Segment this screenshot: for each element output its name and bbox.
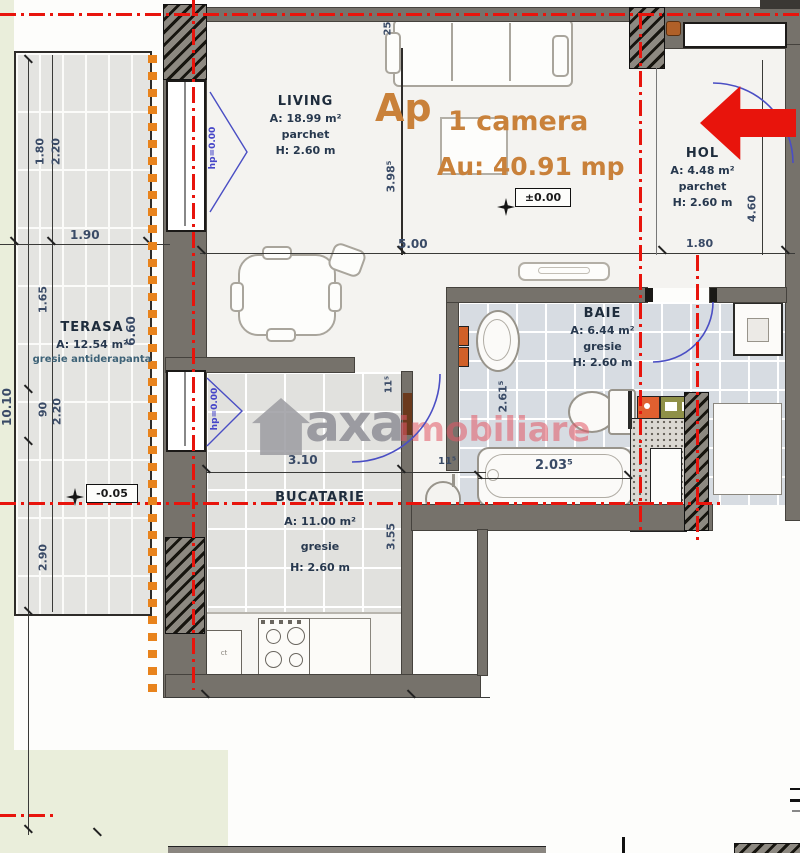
sofa bbox=[393, 19, 573, 87]
page-bottom-green-block bbox=[0, 750, 228, 853]
kitchen-window bbox=[166, 370, 206, 452]
dining-chair-bottom bbox=[266, 328, 296, 342]
living-area: A: 18.99 m² bbox=[248, 112, 363, 125]
bath-door-jamb-right bbox=[710, 288, 717, 302]
baie-height: H: 2.60 m bbox=[555, 356, 650, 369]
dim-bath-261: 2.61⁵ bbox=[497, 367, 510, 427]
kitchen-counter bbox=[309, 618, 371, 676]
level-zero-box: ±0.00 bbox=[515, 188, 571, 207]
bath-sink-inner bbox=[483, 319, 511, 361]
stove-knob-strip bbox=[261, 620, 305, 624]
dim-living-398: 3.98⁵ bbox=[385, 147, 398, 207]
right-edge-dash-3 bbox=[792, 810, 800, 812]
axis-stub-bottom-left bbox=[0, 814, 56, 817]
hol-area: A: 4.48 m² bbox=[655, 164, 750, 177]
bucatarie-name: BUCATARIE bbox=[250, 490, 390, 505]
bathtub bbox=[477, 447, 633, 507]
bucatarie-label: BUCATARIE A: 11.00 m² gresie H: 2.60 m bbox=[250, 490, 390, 574]
living-label: LIVING A: 18.99 m² parchet H: 2.60 m bbox=[248, 94, 363, 157]
dim-terrace-width: 1.90 bbox=[70, 228, 100, 242]
bucatarie-area: A: 11.00 m² bbox=[250, 515, 390, 528]
terasa-label: TERASA A: 12.54 m² gresie antiderapanta bbox=[18, 320, 166, 365]
apartment-type: 1 camera bbox=[448, 106, 588, 137]
dim-line-living-hol bbox=[200, 253, 795, 254]
hol-height: H: 2.60 m bbox=[655, 196, 750, 209]
duct-niche bbox=[713, 403, 782, 495]
dim-kitchen-310: 3.10 bbox=[288, 453, 318, 467]
living-window bbox=[166, 80, 206, 232]
hall-console-inner bbox=[538, 267, 590, 274]
apartment-code: Ap bbox=[375, 86, 432, 130]
stove-burner-3 bbox=[265, 651, 282, 668]
living-floor: parchet bbox=[248, 128, 363, 141]
terasa-name: TERASA bbox=[18, 320, 166, 335]
hol-floor: parchet bbox=[655, 180, 750, 193]
kitchen-cabinet-ct: ct bbox=[206, 630, 242, 675]
baie-area: A: 6.44 m² bbox=[555, 324, 650, 337]
dim-terrace-180: 1.80 bbox=[34, 122, 47, 182]
dim-terrace-220b: 2.20 bbox=[51, 382, 64, 442]
sofa-armrest-right bbox=[552, 35, 569, 77]
baie-name: BAIE bbox=[555, 306, 650, 321]
panel-switch-a bbox=[665, 402, 677, 411]
top-right-corner-wall bbox=[760, 0, 800, 9]
axis-line-left-wall bbox=[192, 0, 195, 690]
bucatarie-height: H: 2.60 m bbox=[250, 561, 390, 574]
dim-bath-203: 2.03⁵ bbox=[535, 458, 573, 473]
baie-label: BAIE A: 6.44 m² gresie H: 2.60 m bbox=[555, 306, 650, 369]
washing-machine bbox=[733, 302, 783, 356]
dim-line-kitchen-310 bbox=[206, 472, 486, 473]
kitchen-window-midline bbox=[184, 372, 186, 446]
top-wall-hatched-column bbox=[630, 8, 664, 68]
electric-panel-dot bbox=[644, 403, 650, 409]
dim-line-left-edge bbox=[28, 60, 29, 835]
living-height: H: 2.60 m bbox=[248, 144, 363, 157]
kitchen-stove bbox=[258, 618, 310, 676]
entrance-door-leaf bbox=[683, 22, 787, 48]
dim-wall-25: 25 bbox=[383, 0, 394, 59]
stove-burner-2 bbox=[287, 627, 305, 645]
sofa-cushion-divider-1 bbox=[451, 23, 453, 81]
terasa-area: A: 12.54 m² bbox=[18, 338, 166, 351]
axis-line-top bbox=[0, 13, 800, 16]
bathtub-drain bbox=[487, 469, 499, 481]
right-edge-dash-1 bbox=[790, 788, 800, 790]
dim-line-bath-203 bbox=[478, 478, 630, 479]
dim-terrace-290: 2.90 bbox=[37, 528, 50, 588]
bath-door-jamb-left bbox=[645, 288, 653, 302]
living-name: LIVING bbox=[248, 94, 363, 109]
bath-bottom-wall bbox=[412, 505, 712, 530]
bottom-section-hatch bbox=[735, 844, 800, 853]
living-window-midline bbox=[184, 82, 186, 226]
baie-floor: gresie bbox=[555, 340, 650, 353]
right-edge-dash-2 bbox=[790, 799, 800, 802]
dim-terrace-1010: 10.10 bbox=[0, 377, 14, 437]
dim-wall-115: 11⁵ bbox=[384, 355, 395, 415]
bath-top-wall-left bbox=[447, 288, 647, 302]
living-window-hp-label: hp=0.00 bbox=[208, 118, 218, 178]
property-boundary-dotted bbox=[148, 55, 157, 693]
dim-line-living-split bbox=[401, 48, 403, 255]
dining-table bbox=[238, 254, 336, 336]
bottom-section-tick bbox=[622, 837, 625, 853]
dim-living-500: 5.00 bbox=[398, 237, 428, 251]
stove-burner-1 bbox=[266, 629, 281, 644]
dim-terrace-220a: 2.20 bbox=[50, 122, 63, 182]
floor-plan-canvas: ct bbox=[0, 0, 800, 853]
level-minus-box: -0.05 bbox=[86, 484, 138, 503]
dim-line-hol-460 bbox=[762, 60, 763, 255]
bottom-section-bar bbox=[168, 846, 546, 853]
bucatarie-floor: gresie bbox=[250, 540, 390, 553]
sofa-cushion-divider-2 bbox=[509, 23, 511, 81]
watermark-suffix: imobiliare bbox=[398, 410, 591, 450]
bath-top-wall-right bbox=[710, 288, 786, 302]
dining-chair-left bbox=[230, 282, 244, 312]
kitchen-bottom-wall bbox=[166, 675, 480, 697]
dim-line-terrace-width bbox=[0, 244, 170, 245]
floor-drain-handle bbox=[452, 474, 455, 487]
stove-burner-4 bbox=[289, 653, 303, 667]
left-wall-hatched-column-bottom bbox=[166, 538, 204, 633]
terasa-floor: gresie antiderapanta bbox=[18, 354, 166, 365]
dim-line-kitchen-bottom bbox=[166, 697, 490, 698]
bath-sink bbox=[476, 310, 520, 372]
dim-corridor-115: 11⁵ bbox=[438, 456, 456, 467]
washing-machine-door bbox=[747, 318, 769, 342]
corridor-step-wall bbox=[478, 530, 487, 675]
shaft-opening bbox=[650, 448, 682, 507]
dim-hol-180: 1.80 bbox=[686, 237, 713, 250]
dim-terrace-90: 90 bbox=[37, 380, 50, 440]
left-wall-hatched-column-top bbox=[164, 5, 206, 79]
kitchen-window-hp-label: hp=0.00 bbox=[210, 379, 220, 439]
toilet-tank-bar bbox=[628, 391, 632, 429]
kitchen-cabinet-label: ct bbox=[221, 649, 228, 657]
hall-console bbox=[518, 262, 610, 281]
entrance-door-hinge bbox=[666, 21, 681, 36]
axis-line-bath-b bbox=[696, 255, 699, 540]
axis-line-bath-a bbox=[639, 13, 642, 530]
apartment-usable-area: Au: 40.91 mp bbox=[437, 152, 625, 181]
dining-chair-right bbox=[328, 282, 342, 312]
